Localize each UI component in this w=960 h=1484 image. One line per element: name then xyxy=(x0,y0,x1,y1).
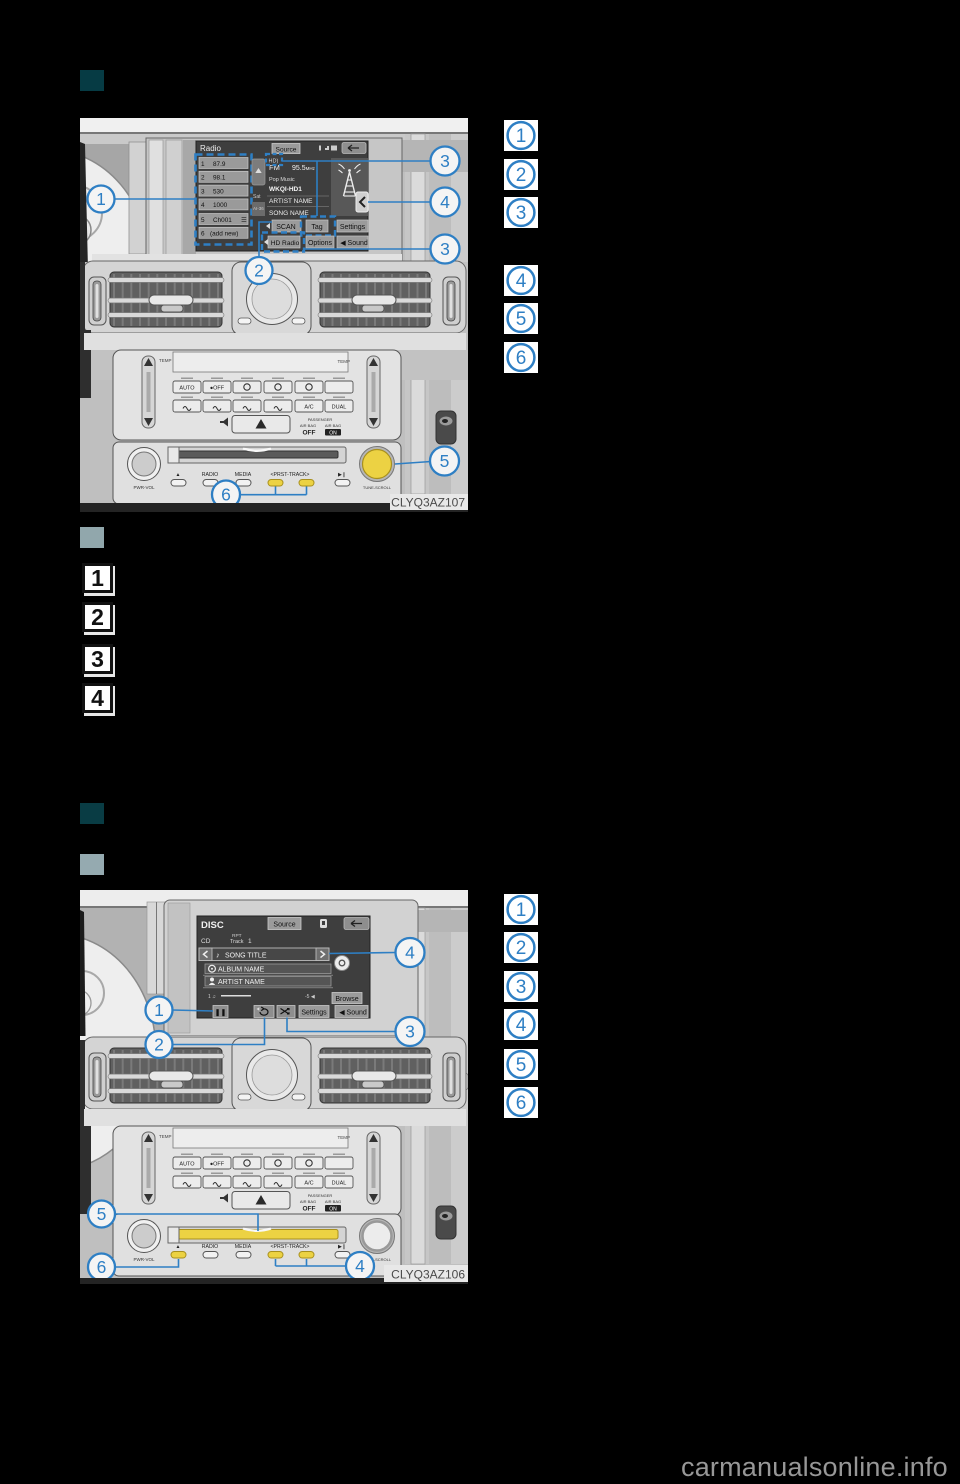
svg-text:1: 1 xyxy=(201,161,205,168)
svg-text:Radio: Radio xyxy=(200,144,221,153)
svg-text:3: 3 xyxy=(405,1022,415,1042)
svg-text:AIR BAG: AIR BAG xyxy=(300,1199,316,1204)
svg-text:2: 2 xyxy=(516,165,527,186)
svg-text:A/C: A/C xyxy=(304,405,313,411)
svg-text:95.5MHz: 95.5MHz xyxy=(292,165,316,172)
svg-text:◀ Sound: ◀ Sound xyxy=(339,1010,367,1017)
svg-text:<PRST-TRACK>: <PRST-TRACK> xyxy=(271,472,310,478)
svg-text:AI-36: AI-36 xyxy=(253,206,264,211)
svg-text:●OFF: ●OFF xyxy=(210,386,225,392)
svg-text:▶❙: ▶❙ xyxy=(338,1244,346,1250)
svg-text:MEDIA: MEDIA xyxy=(235,1244,252,1250)
svg-text:SCAN: SCAN xyxy=(276,224,295,231)
svg-text:A/C: A/C xyxy=(304,1181,313,1187)
svg-text:Options: Options xyxy=(308,240,333,247)
svg-text:TEMP: TEMP xyxy=(159,1134,172,1139)
svg-text:Settings: Settings xyxy=(340,224,366,231)
svg-text:4: 4 xyxy=(355,1256,365,1276)
svg-text:4: 4 xyxy=(516,271,527,292)
svg-text:Pop Music: Pop Music xyxy=(269,177,295,183)
svg-text:5: 5 xyxy=(97,1204,107,1224)
svg-text:AIR BAG: AIR BAG xyxy=(325,423,341,428)
svg-text:DISC: DISC xyxy=(201,920,224,931)
svg-text:Source: Source xyxy=(276,147,297,154)
svg-text:▲: ▲ xyxy=(176,1244,181,1250)
svg-text:SONG TITLE: SONG TITLE xyxy=(225,953,267,960)
svg-text:2: 2 xyxy=(154,1035,164,1055)
svg-text:Ch001: Ch001 xyxy=(213,217,232,224)
svg-text:Browse: Browse xyxy=(335,996,358,1003)
svg-text:DUAL: DUAL xyxy=(332,1181,347,1187)
svg-text:TUNE-SCROLL: TUNE-SCROLL xyxy=(363,485,392,490)
svg-text:☰: ☰ xyxy=(241,217,247,224)
svg-text:1 ♫: 1 ♫ xyxy=(208,994,216,1000)
svg-text:PWR-VOL: PWR-VOL xyxy=(133,485,154,490)
svg-text:AIR BAG: AIR BAG xyxy=(300,423,316,428)
svg-text:5: 5 xyxy=(440,451,450,471)
svg-text:CLYQ3AZ106: CLYQ3AZ106 xyxy=(391,1268,465,1282)
svg-text:87.9: 87.9 xyxy=(213,161,226,168)
svg-text:(add new): (add new) xyxy=(210,231,238,238)
svg-text:ALBUM NAME: ALBUM NAME xyxy=(218,967,265,974)
svg-text:PASSENGER: PASSENGER xyxy=(308,1193,333,1198)
svg-text:Tag: Tag xyxy=(311,224,322,231)
svg-text:3: 3 xyxy=(201,188,205,195)
svg-text:4: 4 xyxy=(516,1015,527,1036)
svg-text:RADIO: RADIO xyxy=(202,472,218,478)
svg-text:5: 5 xyxy=(201,217,205,224)
svg-text:❚❚: ❚❚ xyxy=(215,1009,227,1017)
svg-text:1: 1 xyxy=(516,900,527,921)
svg-text:98.1: 98.1 xyxy=(213,175,226,182)
svg-text:5: 5 xyxy=(516,309,527,330)
svg-text:3: 3 xyxy=(440,239,450,259)
svg-text:AUTO: AUTO xyxy=(179,386,195,392)
svg-text:TEMP: TEMP xyxy=(337,1135,350,1140)
svg-text:▲: ▲ xyxy=(176,472,181,478)
svg-text:6: 6 xyxy=(516,1093,527,1114)
svg-text:Source: Source xyxy=(273,922,295,929)
svg-text:●OFF: ●OFF xyxy=(210,1162,225,1168)
svg-text:HD Radio: HD Radio xyxy=(271,240,300,247)
svg-text:Track: Track xyxy=(230,939,244,945)
svg-text:OFF: OFF xyxy=(303,1206,316,1213)
svg-text:6: 6 xyxy=(97,1257,107,1277)
svg-text:CLYQ3AZ107: CLYQ3AZ107 xyxy=(391,496,465,510)
svg-text:1: 1 xyxy=(516,126,527,147)
svg-text:HD): HD) xyxy=(269,159,279,165)
svg-text:530: 530 xyxy=(213,188,224,195)
svg-text:OFF: OFF xyxy=(303,430,316,437)
svg-text:4: 4 xyxy=(440,192,450,212)
svg-text:Sat: Sat xyxy=(253,194,261,200)
svg-text:PASSENGER: PASSENGER xyxy=(308,417,333,422)
svg-text:2: 2 xyxy=(254,261,264,281)
svg-text:▶❙: ▶❙ xyxy=(338,472,346,478)
svg-text:2: 2 xyxy=(516,938,527,959)
svg-text:PWR-VOL: PWR-VOL xyxy=(133,1257,154,1262)
svg-text:AIR BAG: AIR BAG xyxy=(325,1199,341,1204)
svg-text:AUTO: AUTO xyxy=(179,1162,195,1168)
svg-text:ARTIST NAME: ARTIST NAME xyxy=(269,198,313,205)
svg-text:ON: ON xyxy=(329,431,337,437)
svg-text:ARTIST NAME: ARTIST NAME xyxy=(218,979,265,986)
svg-text:◀ Sound: ◀ Sound xyxy=(340,240,368,247)
svg-text:1: 1 xyxy=(154,1000,164,1020)
svg-text:RADIO: RADIO xyxy=(202,1244,218,1250)
svg-text:6: 6 xyxy=(201,231,205,238)
svg-text:MEDIA: MEDIA xyxy=(235,472,252,478)
svg-text:<PRST-TRACK>: <PRST-TRACK> xyxy=(271,1244,310,1250)
svg-text:5: 5 xyxy=(516,1055,527,1076)
svg-text:TEMP: TEMP xyxy=(337,359,350,364)
svg-text:2: 2 xyxy=(201,175,205,182)
svg-text:Settings: Settings xyxy=(301,1010,327,1017)
svg-text:4: 4 xyxy=(201,202,205,209)
svg-text:ON: ON xyxy=(329,1207,337,1213)
svg-text:6: 6 xyxy=(516,348,527,369)
svg-text:DUAL: DUAL xyxy=(332,405,347,411)
svg-text:6: 6 xyxy=(221,485,231,505)
svg-text:1000: 1000 xyxy=(213,202,228,209)
svg-text:1: 1 xyxy=(248,938,252,945)
svg-text:♪: ♪ xyxy=(216,951,220,960)
svg-text:1: 1 xyxy=(96,189,106,209)
svg-text:-5 ◀: -5 ◀ xyxy=(305,994,315,1000)
svg-text:WKQI-HD1: WKQI-HD1 xyxy=(269,186,302,193)
svg-text:CD: CD xyxy=(201,938,211,945)
svg-text:4: 4 xyxy=(405,943,415,963)
svg-text:TEMP: TEMP xyxy=(159,358,172,363)
svg-text:3: 3 xyxy=(440,151,450,171)
svg-text:3: 3 xyxy=(516,977,527,998)
svg-text:3: 3 xyxy=(516,203,527,224)
